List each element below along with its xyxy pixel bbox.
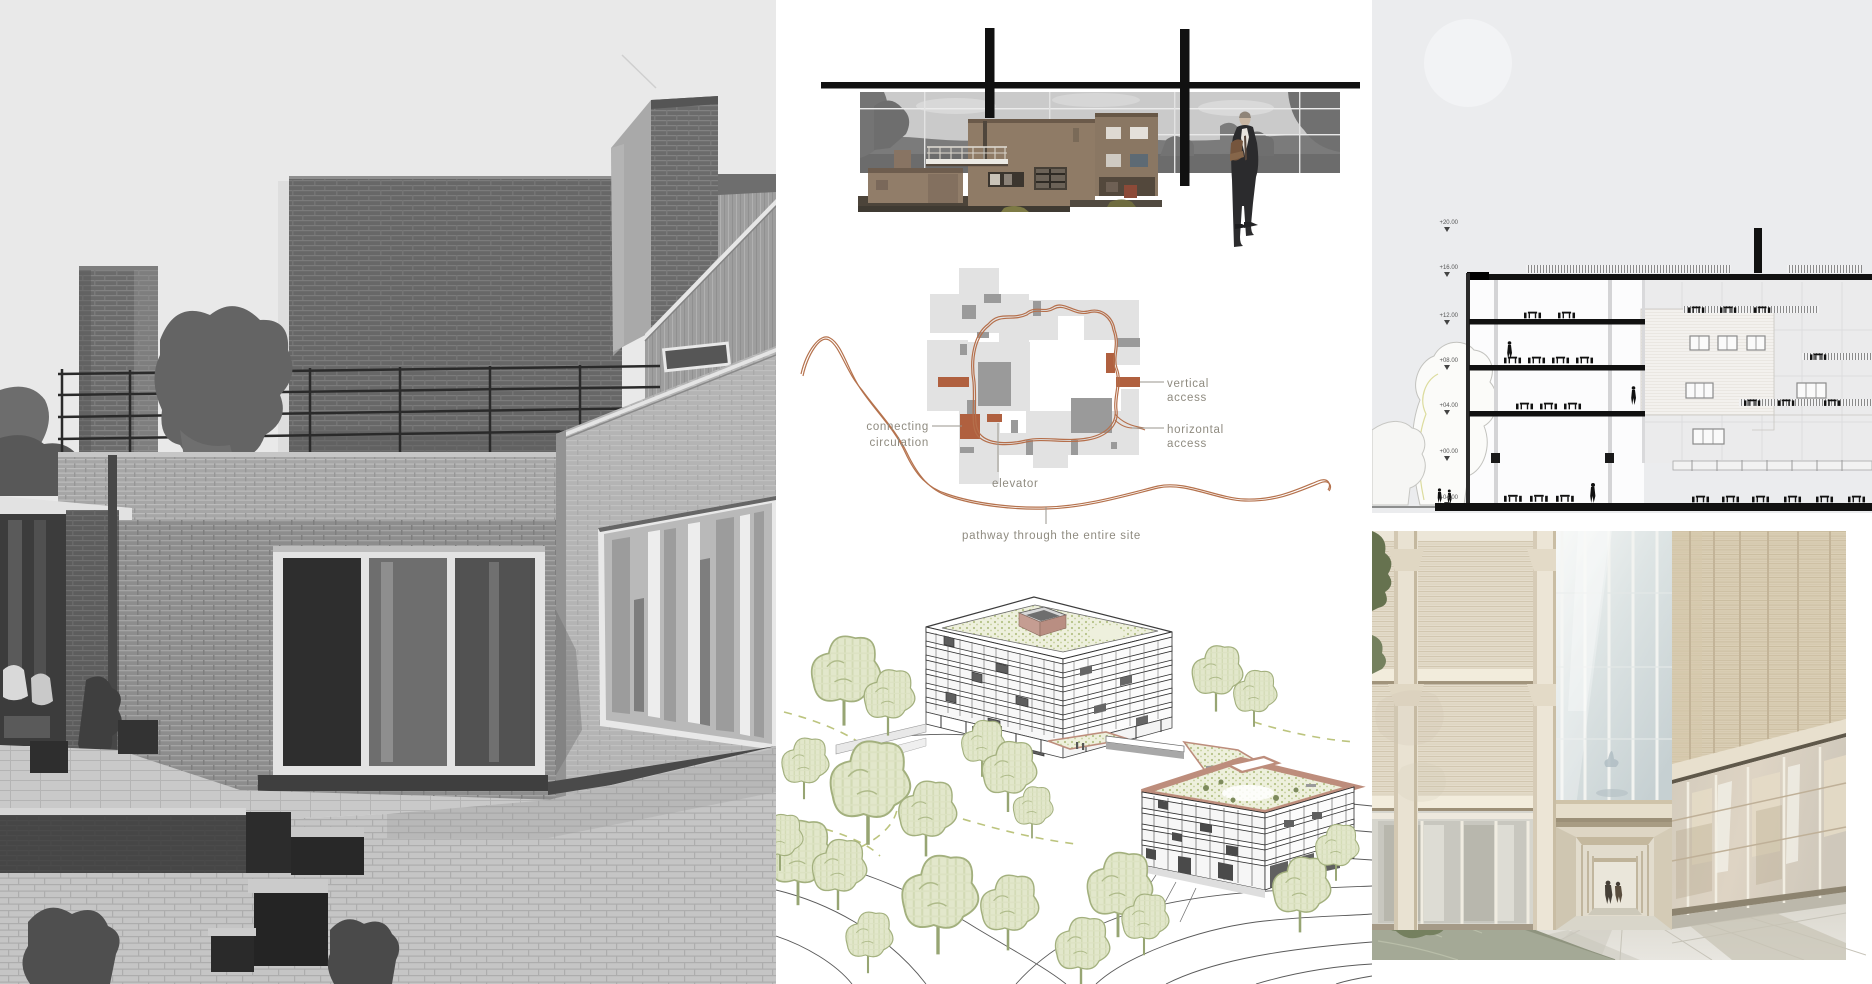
svg-text:vertical: vertical — [1167, 378, 1209, 390]
svg-text:+00.00: +00.00 — [1439, 449, 1458, 455]
svg-text:+20.00: +20.00 — [1439, 220, 1458, 226]
svg-text:+08.00: +08.00 — [1439, 358, 1458, 364]
svg-text:+04.00: +04.00 — [1439, 403, 1458, 409]
svg-text:connecting: connecting — [866, 421, 929, 433]
svg-text:pathway through the entire sit: pathway through the entire site — [962, 530, 1141, 542]
svg-text:-04.00: -04.00 — [1441, 495, 1459, 501]
svg-text:horizontal: horizontal — [1167, 424, 1224, 436]
svg-text:access: access — [1167, 392, 1207, 404]
svg-text:+12.00: +12.00 — [1439, 313, 1458, 319]
svg-text:access: access — [1167, 438, 1207, 450]
svg-text:+16.00: +16.00 — [1439, 265, 1458, 271]
svg-text:elevator: elevator — [992, 478, 1039, 490]
svg-text:circulation: circulation — [870, 437, 929, 449]
